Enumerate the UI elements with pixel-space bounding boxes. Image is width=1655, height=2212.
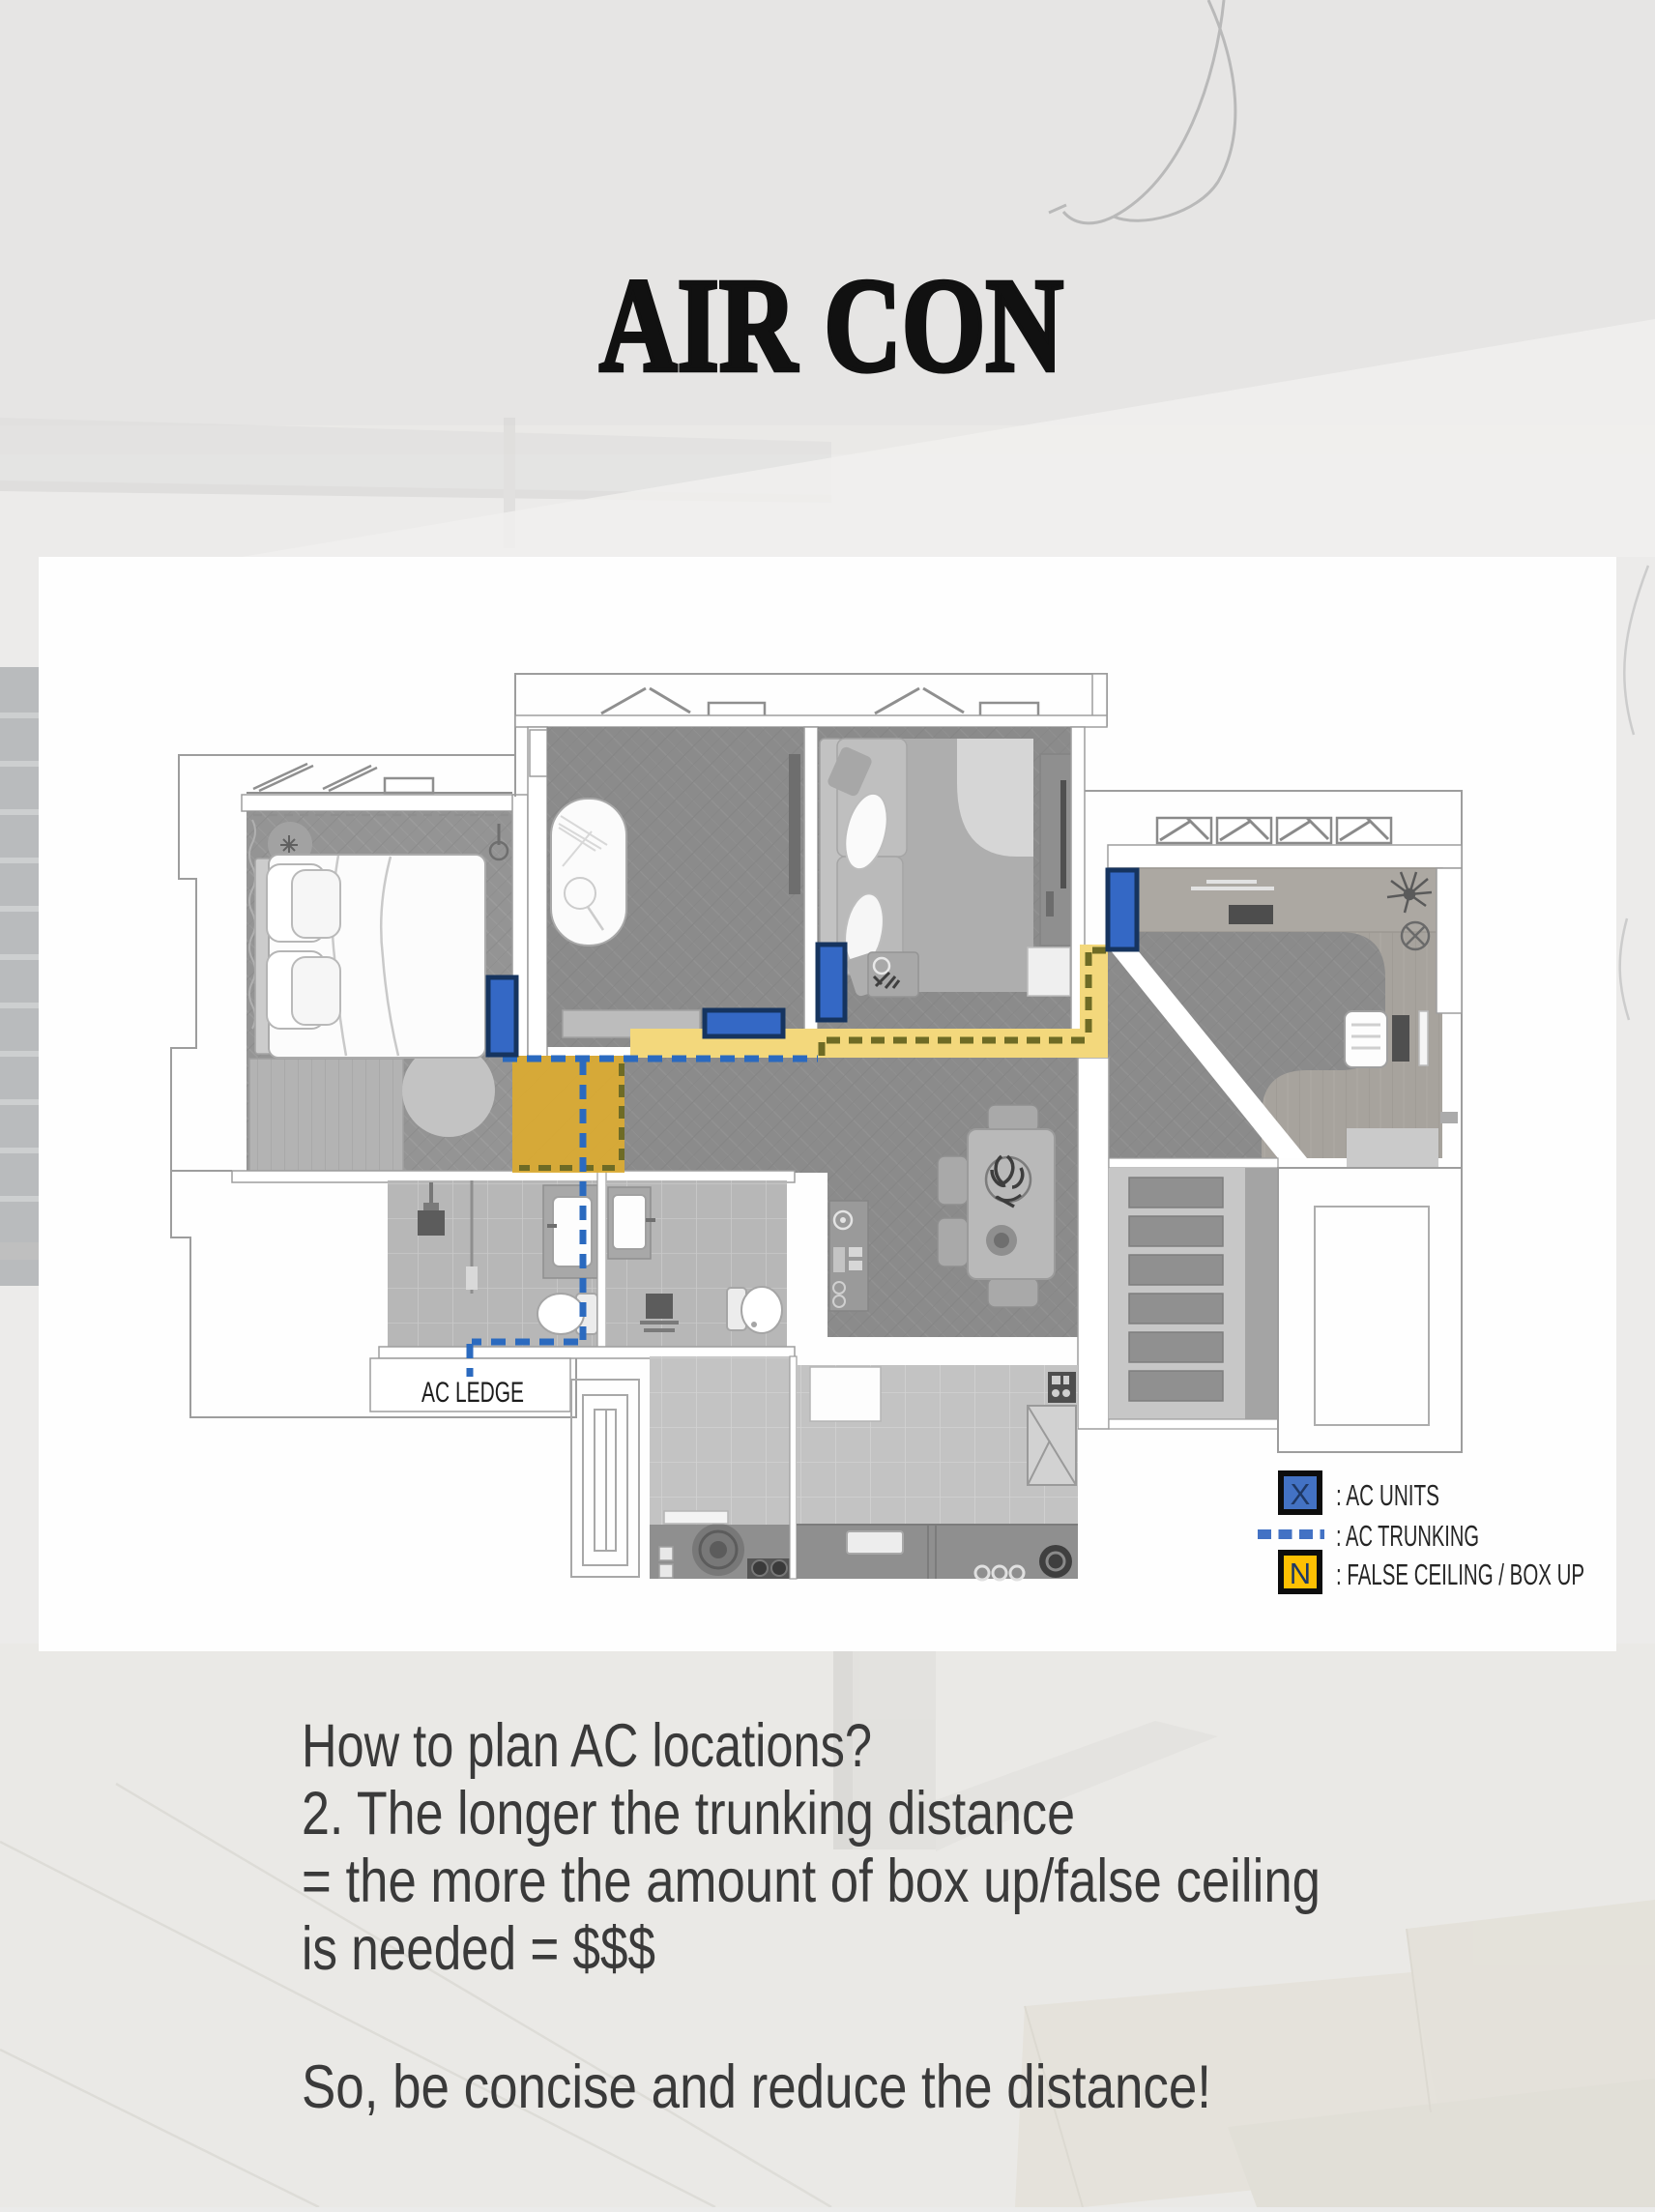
svg-text:is needed = $$$: is needed = $$$ [302,1915,655,1983]
svg-text:: FALSE CEILING / BOX UP: : FALSE CEILING / BOX UP [1336,1557,1584,1591]
svg-text:So, be concise and reduce the: So, be concise and reduce the distance! [302,2053,1211,2121]
svg-text:X: X [1291,1477,1311,1511]
svg-text:: AC UNITS: : AC UNITS [1336,1478,1439,1512]
svg-text:= the more the amount of box u: = the more the amount of box up/false ce… [302,1848,1321,1915]
svg-text:How to plan AC locations?: How to plan AC locations? [302,1712,872,1780]
svg-text:: AC TRUNKING: : AC TRUNKING [1336,1519,1479,1553]
svg-text:2. The longer the trunking dis: 2. The longer the trunking distance [302,1780,1075,1848]
svg-text:AIR CON: AIR CON [599,251,1063,400]
svg-text:AC LEDGE: AC LEDGE [421,1377,524,1409]
svg-text:N: N [1290,1557,1311,1590]
